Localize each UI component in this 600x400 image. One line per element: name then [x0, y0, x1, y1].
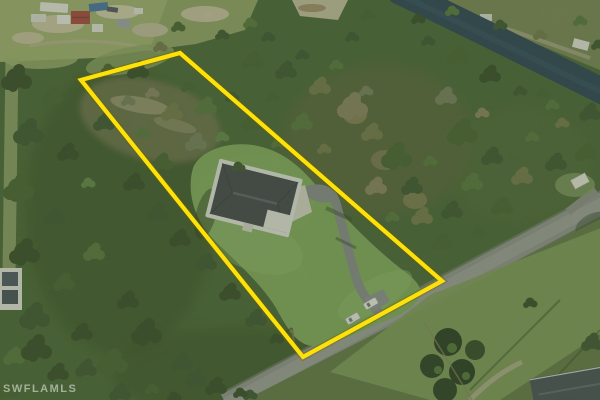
aerial-photo: SWFLAMLS [0, 0, 600, 400]
aerial-photo-frame: SWFLAMLS [0, 0, 600, 400]
watermark-text: SWFLAMLS [3, 383, 77, 395]
photo-blotch [0, 0, 600, 400]
